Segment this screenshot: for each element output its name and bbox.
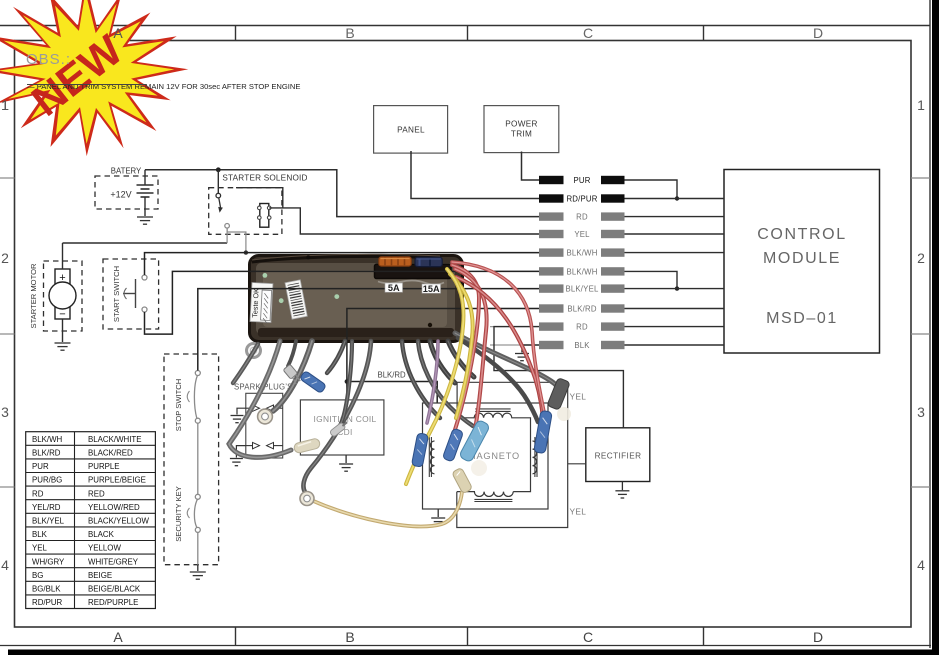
svg-text:MODULE: MODULE [763,250,841,267]
svg-text:4: 4 [917,557,925,573]
svg-text:BG/BLK: BG/BLK [32,585,61,594]
svg-text:RED: RED [88,489,105,498]
svg-text:BLK/WH: BLK/WH [32,435,63,444]
svg-text:PURPLE/BEIGE: PURPLE/BEIGE [88,476,146,485]
svg-text:BLK: BLK [32,530,48,539]
svg-text:START SWITCH: START SWITCH [112,266,121,322]
svg-text:2: 2 [917,250,925,266]
svg-text:15A: 15A [423,284,440,294]
svg-text:BLK/YEL: BLK/YEL [32,517,65,526]
svg-text:B: B [345,629,354,645]
svg-text:BLK: BLK [574,341,590,350]
svg-text:3: 3 [1,404,9,420]
svg-text:YEL: YEL [570,507,587,517]
svg-text:+12V: +12V [110,190,131,200]
svg-text:YELLOW/RED: YELLOW/RED [88,503,140,512]
svg-text:3: 3 [917,404,925,420]
svg-text:BLACK/WHITE: BLACK/WHITE [88,435,142,444]
svg-text:YEL/RD: YEL/RD [32,503,61,512]
svg-text:STOP SWITCH: STOP SWITCH [174,379,183,431]
svg-text:D: D [813,25,823,41]
svg-text:C: C [583,25,593,41]
svg-text:PUR: PUR [32,462,49,471]
svg-text:RD/PUR: RD/PUR [32,598,63,607]
svg-text:WH/GRY: WH/GRY [32,557,65,566]
svg-text:TRIM: TRIM [511,130,532,139]
svg-text:BLACK/RED: BLACK/RED [88,449,133,458]
svg-text:YEL: YEL [32,544,48,553]
svg-text:POWER: POWER [505,120,537,129]
svg-text:BLK/YEL: BLK/YEL [565,285,599,294]
svg-text:RD/PUR: RD/PUR [566,195,597,204]
svg-text:RD: RD [576,213,588,222]
svg-text:BLK/RD: BLK/RD [567,305,597,314]
svg-text:WHITE/GREY: WHITE/GREY [88,557,139,566]
svg-text:BATERY: BATERY [111,167,142,176]
svg-text:1: 1 [917,97,925,113]
svg-text:4: 4 [1,557,9,573]
svg-text:— PANEL AND TRIM SYSTEM REMAIN: — PANEL AND TRIM SYSTEM REMAIN 12V FOR 3… [27,82,300,91]
svg-text:SECURITY KEY: SECURITY KEY [174,486,183,542]
svg-text:YELLOW: YELLOW [88,544,121,553]
svg-text:Teste OK: Teste OK [250,288,261,318]
svg-text:PURPLE: PURPLE [88,462,120,471]
svg-text:BEIGE: BEIGE [88,571,112,580]
svg-text:BEIGE/BLACK: BEIGE/BLACK [88,585,141,594]
svg-text:RECTIFIER: RECTIFIER [595,452,642,461]
svg-text:STARTER SOLENOID: STARTER SOLENOID [222,174,307,183]
svg-text:PUR: PUR [573,176,590,185]
svg-text:BG: BG [32,571,43,580]
svg-text:BLK/WH: BLK/WH [566,249,597,258]
svg-text:PUR/BG: PUR/BG [32,476,62,485]
svg-text:BLK/WH: BLK/WH [566,267,597,276]
svg-text:A: A [113,629,123,645]
svg-text:RED/PURPLE: RED/PURPLE [88,598,138,607]
svg-text:YEL: YEL [574,230,590,239]
svg-text:1: 1 [1,97,9,113]
svg-text:−: − [59,309,65,321]
svg-text:B: B [345,25,354,41]
svg-text:MSD–01: MSD–01 [766,310,838,327]
svg-text:YEL: YEL [570,392,587,402]
svg-text:CONTROL: CONTROL [757,226,846,243]
svg-text:RD: RD [32,489,44,498]
svg-text:2: 2 [1,250,9,266]
svg-text:RD: RD [576,323,588,332]
svg-text:A: A [113,25,123,41]
svg-text:D: D [813,629,823,645]
svg-text:STARTER MOTOR: STARTER MOTOR [29,263,38,328]
svg-text:+: + [59,272,65,284]
svg-text:PANEL: PANEL [397,126,425,135]
svg-text:BLK/RD: BLK/RD [378,371,407,380]
svg-text:BLACK: BLACK [88,530,115,539]
svg-text:OBS.:: OBS.: [26,51,71,68]
svg-text:5A: 5A [388,283,400,293]
svg-text:C: C [583,629,593,645]
svg-text:BLK/RD: BLK/RD [32,449,61,458]
svg-text:BLACK/YELLOW: BLACK/YELLOW [88,517,150,526]
